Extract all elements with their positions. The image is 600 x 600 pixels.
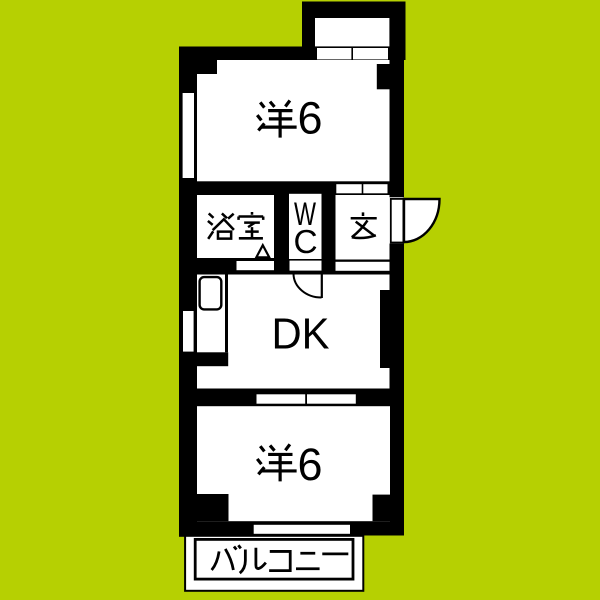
- svg-text:6: 6: [298, 439, 323, 490]
- svg-text:DK: DK: [272, 310, 330, 359]
- svg-text:C: C: [294, 224, 318, 261]
- svg-text:6: 6: [298, 93, 323, 144]
